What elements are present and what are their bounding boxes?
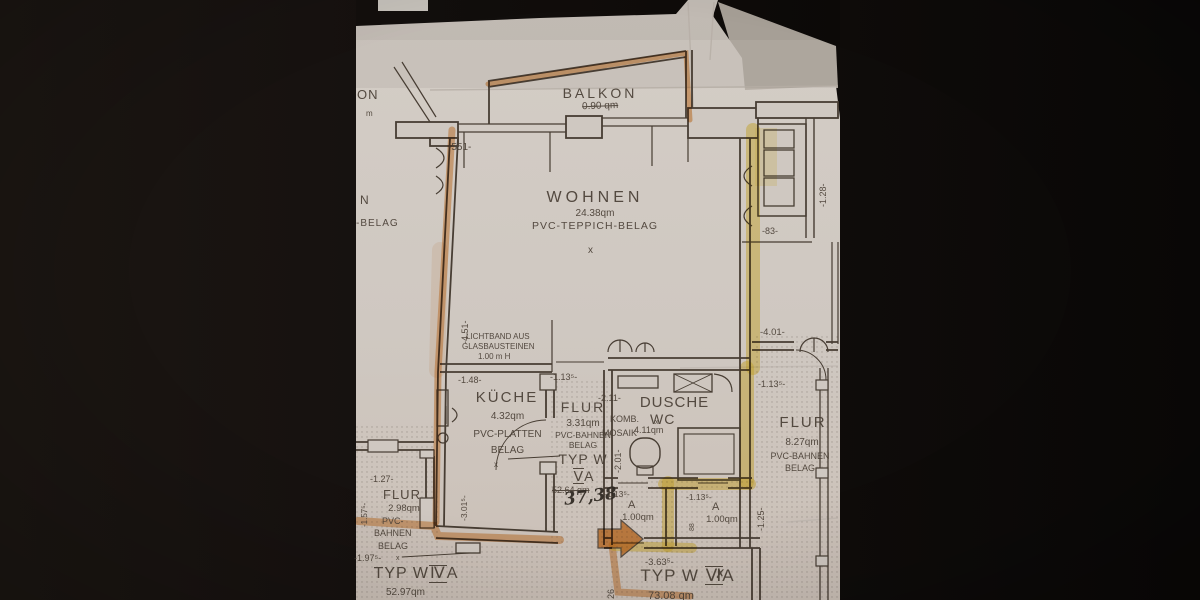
room-label-wohnen: WOHNEN bbox=[535, 190, 655, 207]
flur-links-floor-3: BELAG bbox=[378, 542, 408, 551]
wohnen-area: 24.38qm bbox=[535, 209, 655, 220]
dim-1135-abstell-2: -1.13⁵- bbox=[686, 493, 712, 502]
dim-83: -83- bbox=[762, 227, 778, 236]
flur-mitte-floor-2: BELAG bbox=[552, 441, 614, 450]
dim-401: -4.01- bbox=[760, 328, 785, 338]
dim-88-vertical: 88 bbox=[689, 523, 696, 531]
wohnen-floor: PVC-TEPPICH-BELAG bbox=[515, 221, 675, 232]
wohnen-x-mark: x bbox=[588, 246, 593, 257]
abstell-1-area: 1.00qm bbox=[612, 513, 664, 523]
typ-iva-roman: Ⅳ bbox=[429, 565, 447, 583]
flur-rechts-floor-2: BELAG bbox=[770, 464, 830, 473]
flur-rechts-area: 8.27qm bbox=[772, 438, 832, 449]
dim-1575-vertical: -1.57⁵- bbox=[361, 503, 369, 527]
typ-iva-prefix: TYP W bbox=[374, 565, 429, 582]
dusche-komb: KOMB. bbox=[610, 415, 639, 424]
typ-iva-area: 52.97qm bbox=[386, 588, 425, 599]
typ-va-suffix: A bbox=[584, 468, 593, 484]
dim-3015-vertical: -3.01⁵- bbox=[460, 495, 469, 521]
dim-201-vertical: -2.01- bbox=[614, 449, 623, 473]
room-label-dusche: DUSCHE bbox=[632, 395, 717, 411]
lichtband-note-3: 1.00 m H bbox=[478, 353, 510, 361]
dim-148: -1.48- bbox=[458, 376, 482, 385]
typ-iva-suffix: A bbox=[447, 565, 459, 582]
photo-of-floorplan: BALKON 0.90 qm -551- ON m WOHNEN 24.38qm… bbox=[0, 0, 1200, 600]
kueche-area: 4.32qm bbox=[470, 412, 545, 423]
partial-text-belag: -BELAG bbox=[356, 219, 399, 230]
lichtband-note-2: GLASBAUSTEINEN bbox=[462, 343, 534, 351]
room-label-balkon: BALKON bbox=[545, 86, 655, 101]
kueche-x-mark: x bbox=[494, 461, 498, 469]
typ-via-x-mark: ✗ bbox=[715, 568, 726, 581]
dim-126-vertical-partial: 26 bbox=[607, 589, 616, 599]
typ-va-prefix: TYP W bbox=[548, 452, 618, 467]
abstell-2-label: A bbox=[712, 502, 719, 514]
typ-via-area-partial: 73.08 qm bbox=[648, 591, 694, 600]
dim-1135-right: -1.13⁵- bbox=[758, 380, 785, 389]
dim-1975: -1.97⁵- bbox=[354, 554, 381, 563]
dim-1135-abstell-1: -1.13⁵- bbox=[604, 490, 630, 499]
dim-128-vertical: -1.28- bbox=[819, 183, 828, 207]
flur-links-x-mark: x bbox=[396, 555, 400, 562]
dim-127: -1.27- bbox=[370, 475, 394, 484]
flur-links-area: 2.98qm bbox=[380, 504, 428, 514]
typ-va-roman: Ⅴ bbox=[573, 468, 585, 484]
partial-text-n: N bbox=[360, 194, 369, 207]
dim-1135-flur: -1.13⁵- bbox=[550, 373, 577, 382]
flur-links-floor-1: PVC- bbox=[382, 517, 404, 526]
abstell-1-label: A bbox=[628, 500, 635, 512]
partial-text-m: m bbox=[366, 110, 373, 118]
dusche-mosaik: MOSAIK bbox=[602, 429, 637, 438]
dim-125-vertical: -1.25- bbox=[757, 507, 766, 531]
room-label-flur-rechts: FLUR bbox=[768, 415, 838, 431]
typ-via-row: TYP W Ⅵ✗A bbox=[615, 566, 760, 585]
dim-551: -551- bbox=[448, 143, 471, 154]
dusche-area: 4.11qm bbox=[634, 426, 663, 435]
abstell-2-area: 1.00qm bbox=[696, 515, 748, 525]
dim-211: -2.11- bbox=[598, 394, 621, 403]
partial-text-on: ON bbox=[357, 88, 379, 102]
typ-via-prefix: TYP W bbox=[640, 566, 699, 585]
flur-links-floor-2: BAHNEN bbox=[374, 529, 412, 538]
typ-va-roman-row: ⅤA bbox=[548, 468, 618, 484]
kueche-floor-2: BELAG bbox=[465, 446, 550, 457]
flur-rechts-floor-1: PVC-BAHNEN bbox=[756, 452, 844, 461]
room-label-flur-links: FLUR bbox=[374, 488, 430, 502]
room-label-kueche: KÜCHE bbox=[462, 390, 552, 406]
lichtband-note-1: LICHTBAND AUS bbox=[466, 333, 530, 341]
typ-iva-row: TYP WⅣA bbox=[362, 565, 470, 583]
